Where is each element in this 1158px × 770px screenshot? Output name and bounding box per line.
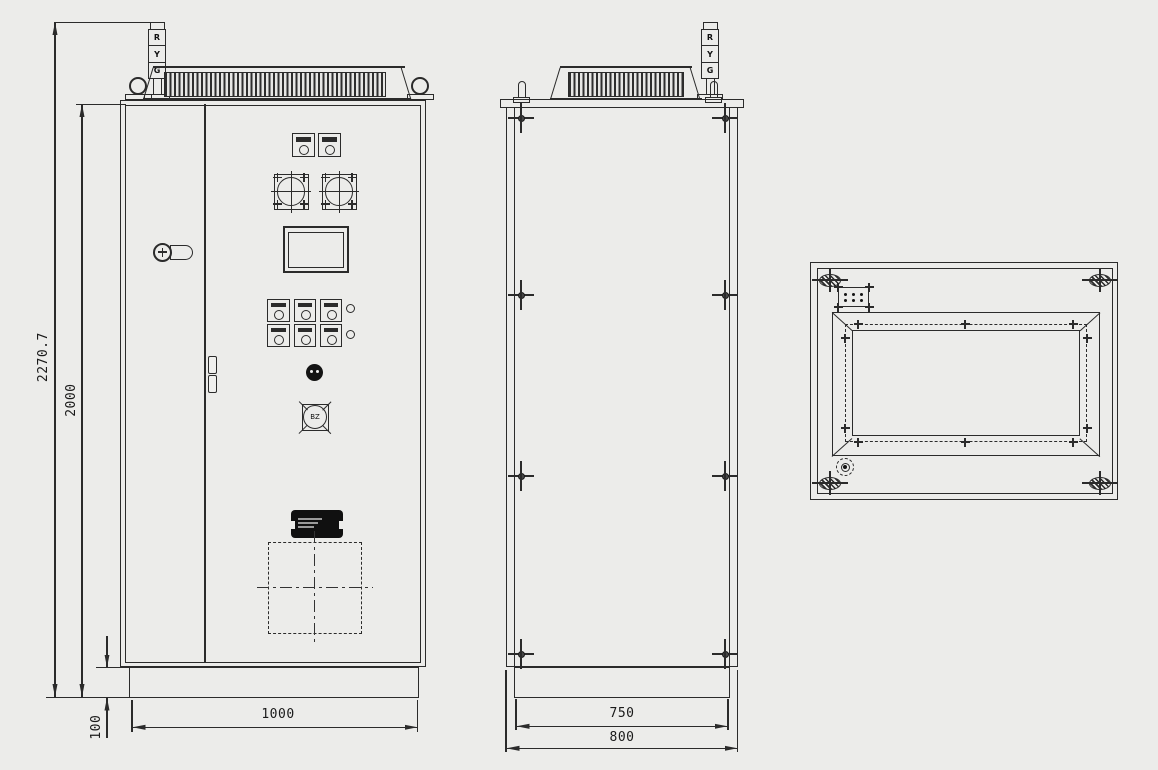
cross-mark-icon [834, 303, 843, 312]
cross-mark-icon [1083, 334, 1092, 343]
cross-mark-icon [1083, 424, 1092, 433]
lifting-eye-icon [1082, 265, 1118, 295]
cross-mark-icon [961, 438, 970, 447]
cross-mark-icon [834, 283, 843, 292]
roof-opening-inner [852, 330, 1080, 436]
cross-mark-icon [854, 320, 863, 329]
cross-mark-icon [841, 424, 850, 433]
cross-mark-icon [854, 438, 863, 447]
top-view [0, 0, 1158, 770]
cross-mark-icon [1069, 320, 1078, 329]
cross-mark-icon [865, 283, 874, 292]
lifting-eye-icon [1082, 468, 1118, 498]
lamp-hole-icon [836, 458, 854, 476]
cross-mark-icon [841, 334, 850, 343]
engineering-drawing-canvas: 2270.7 2000 100 1000 R Y G [0, 0, 1158, 770]
cross-mark-icon [865, 303, 874, 312]
cross-mark-icon [961, 320, 970, 329]
cross-mark-icon [1069, 438, 1078, 447]
